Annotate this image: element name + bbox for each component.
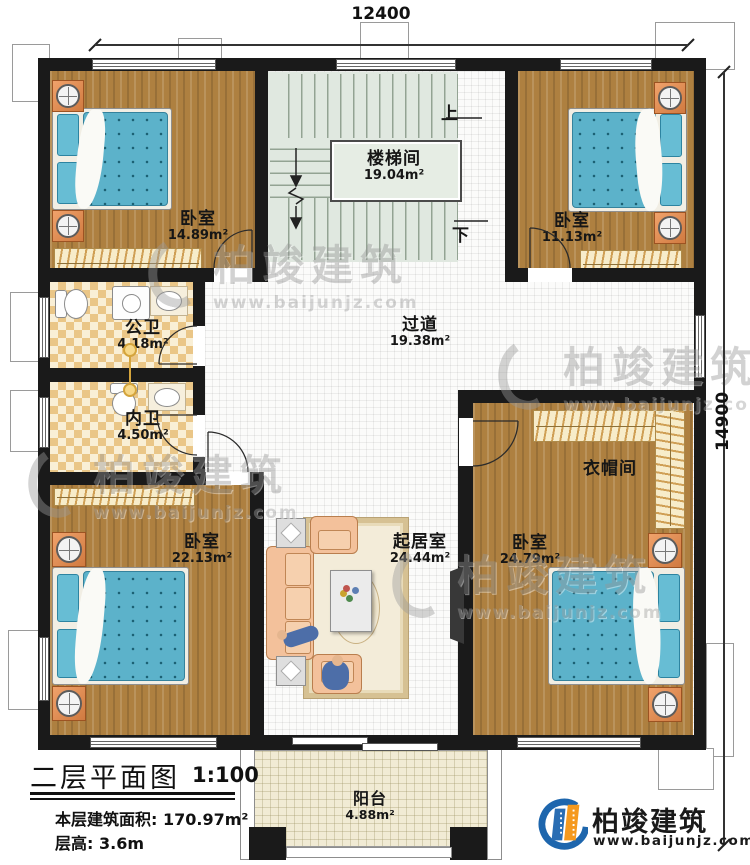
title-rule-thin bbox=[30, 798, 235, 800]
dimension-ticks bbox=[89, 39, 730, 851]
company-logo-icon bbox=[536, 796, 588, 854]
floor-height-label: 层高: bbox=[55, 834, 93, 853]
floor-height-line: 层高: 3.6m bbox=[55, 830, 144, 854]
door-arcs bbox=[157, 228, 570, 472]
floor-area-label: 本层建筑面积: bbox=[55, 810, 157, 829]
towel-radiator bbox=[124, 344, 136, 396]
floor-height-value: 3.6m bbox=[99, 834, 144, 853]
floor-area-line: 本层建筑面积: 170.97m² bbox=[55, 806, 248, 830]
plan-scale: 1:100 bbox=[192, 763, 259, 787]
floor-area-value: 170.97m² bbox=[163, 810, 248, 829]
dimension-label-top: 12400 bbox=[341, 4, 421, 24]
dimension-label-right: 14900 bbox=[713, 405, 733, 451]
dimension-line-right bbox=[723, 72, 725, 845]
dimension-line-top bbox=[95, 44, 688, 46]
floor-plan-canvas: 卧室 14.89m² 楼梯间 19.04m² 卧室 11.13m² 公卫 4.1… bbox=[0, 0, 750, 865]
company-logo-url: www.baijunjz.com bbox=[593, 833, 750, 849]
plan-title: 二层平面图 bbox=[30, 756, 180, 795]
stair-direction-arrows bbox=[289, 118, 488, 228]
door-swing-annotations bbox=[0, 0, 750, 865]
title-rule-thick bbox=[30, 792, 235, 795]
